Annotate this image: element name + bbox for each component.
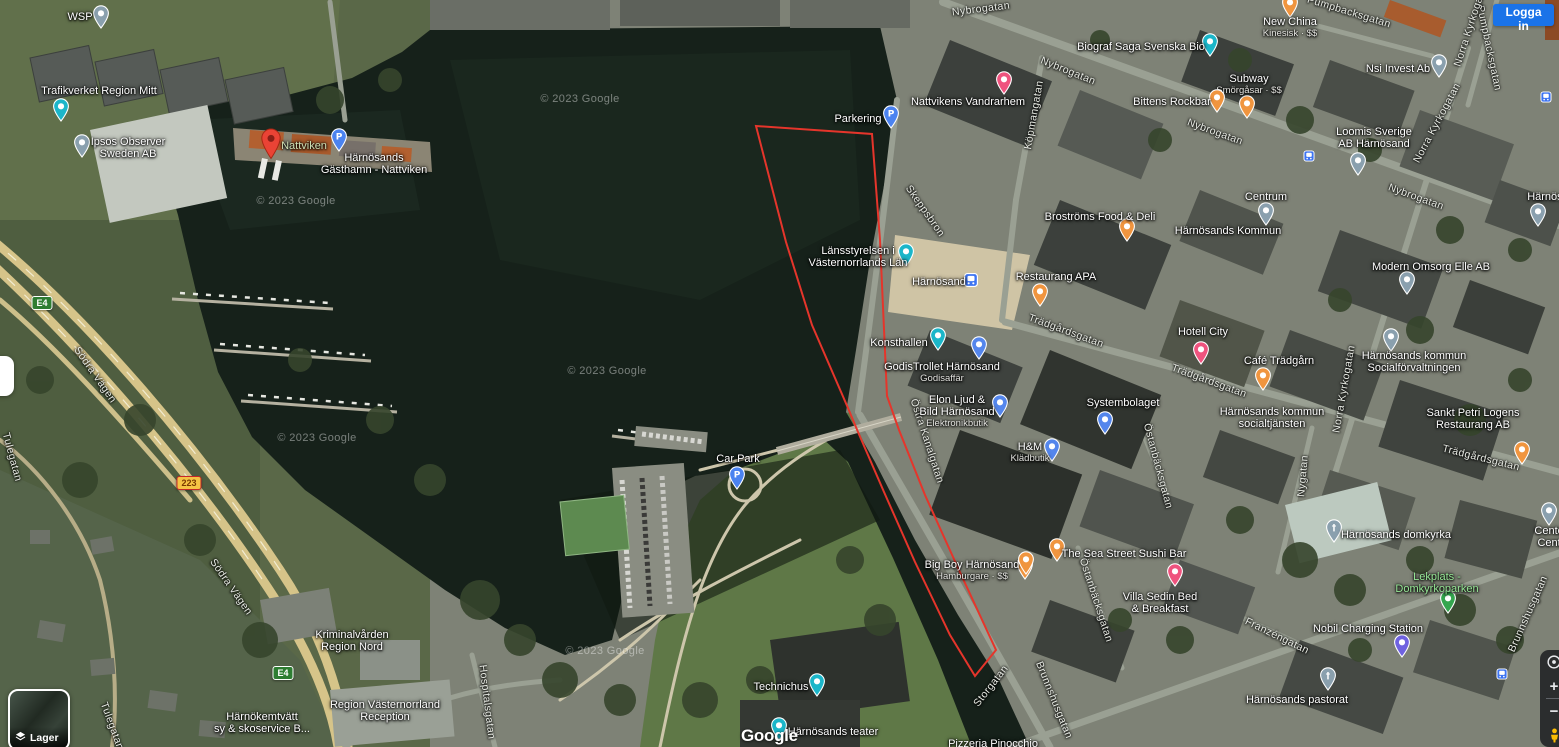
layers-icon [15, 731, 26, 745]
side-panel-toggle[interactable] [0, 356, 14, 396]
map-viewport[interactable]: NybrogatanNybrogatanNybrogatanNybrogatan… [0, 0, 1559, 747]
pegman-icon [1549, 728, 1559, 743]
my-location-button[interactable] [1543, 650, 1559, 674]
drawn-area-overlay [0, 0, 1559, 747]
pegman-button[interactable] [1543, 723, 1559, 747]
layers-label: Lager [30, 732, 59, 744]
map-controls: + − [1540, 650, 1559, 747]
red-polygon [756, 126, 996, 676]
login-button[interactable]: Logga in [1493, 4, 1554, 26]
layers-control[interactable]: Lager [8, 689, 70, 747]
zoom-in-button[interactable]: + [1543, 674, 1559, 698]
compass-icon [1546, 654, 1559, 670]
zoom-out-button[interactable]: − [1543, 699, 1559, 723]
google-logo[interactable]: Google [741, 726, 798, 746]
